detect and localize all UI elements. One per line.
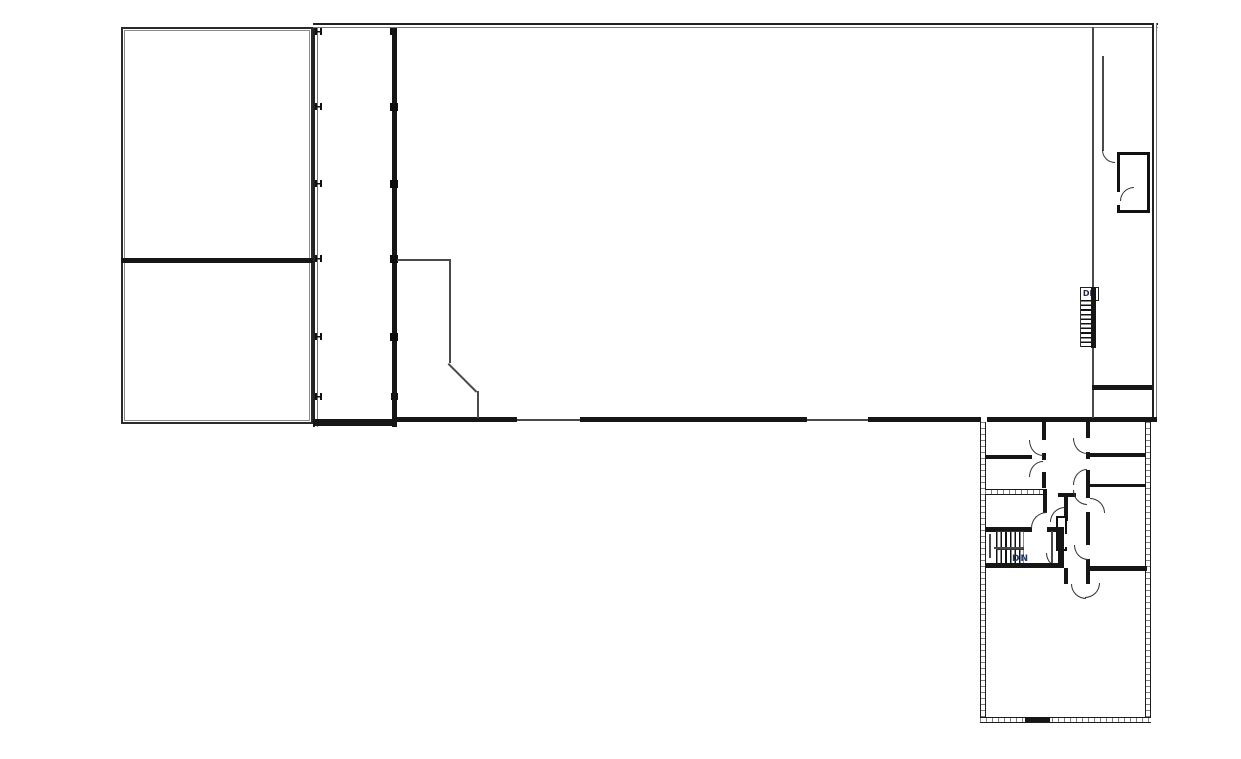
door-swing-arc (1029, 461, 1043, 477)
corridor-right-wall (392, 23, 397, 427)
main-bottom-wall-segment (868, 417, 981, 422)
door-swing-arc (1073, 490, 1087, 505)
double-door-leaf-arc (1071, 584, 1086, 599)
door-swing-arc (1073, 438, 1087, 454)
wing-room-wall (1090, 453, 1145, 457)
stair-upper-dn-label: DN (1080, 287, 1099, 301)
column-icon (315, 180, 322, 187)
stair-lower-wall (1058, 527, 1064, 568)
main-bottom-opening-line (807, 419, 868, 421)
vestibule-left-wall (1042, 422, 1046, 440)
column-icon (315, 28, 322, 35)
partition-line (449, 259, 451, 363)
column-icon (391, 393, 398, 400)
stair-upper-wall (1091, 287, 1096, 348)
column-icon (390, 333, 398, 341)
door-swing-arc (1029, 440, 1043, 456)
stair-lower-treads (996, 531, 1024, 547)
column-icon (315, 333, 322, 340)
corridor-bottom-wall (313, 419, 397, 426)
wing-left-wall (980, 422, 986, 721)
door-swing-arc (1102, 150, 1115, 163)
stair-landing-line (994, 547, 1024, 549)
main-top-wall (313, 23, 1158, 28)
top-right-closet-room (1117, 152, 1150, 213)
wing-room-wall (985, 455, 1032, 459)
corridor-wall (1086, 559, 1090, 584)
wing-room-wall (1090, 484, 1146, 487)
interior-window-band (985, 489, 1043, 495)
door-swing-arc (1031, 512, 1047, 528)
door-swing-arc (1074, 545, 1088, 560)
shaft-door-opening (1065, 534, 1069, 547)
corridor-left-wall (313, 23, 318, 427)
wing-room-wall (1087, 566, 1147, 571)
left-building-divider-wall (121, 258, 313, 263)
stair-direction-line (989, 534, 991, 558)
corridor-wall (1086, 512, 1090, 545)
main-right-wall (1152, 23, 1157, 422)
left-building-outline (121, 27, 313, 424)
column-icon (390, 180, 398, 188)
corridor-wall (1064, 568, 1068, 584)
floor-plan-canvas: DN DN (0, 0, 1241, 759)
wing-bottom-wall-accent (1025, 717, 1050, 722)
main-bottom-wall-segment (580, 417, 807, 422)
stair-lower-dn-label: DN (1012, 554, 1029, 564)
vestibule-right-wall (1086, 422, 1090, 438)
right-zone-partition (1092, 27, 1094, 418)
top-right-partition (1102, 56, 1104, 151)
column-icon (390, 103, 398, 111)
column-icon (315, 393, 322, 400)
main-bottom-wall-segment (397, 417, 517, 422)
double-door-leaf-arc (1085, 583, 1100, 598)
main-bottom-wall-segment (987, 417, 1157, 422)
partition-line (477, 391, 479, 418)
partition-line (397, 259, 449, 261)
wing-bottom-wall (980, 717, 1151, 723)
stair-landing-line (1051, 531, 1053, 563)
door-swing-arc (1090, 498, 1105, 513)
column-icon (315, 103, 322, 110)
bottom-right-room-wall (1092, 385, 1152, 390)
partition-diagonal-line (448, 363, 477, 392)
door-swing-arc (1073, 469, 1087, 485)
main-bottom-opening-line (517, 419, 580, 421)
wing-room-wall (1043, 489, 1047, 513)
column-icon (390, 28, 397, 35)
column-icon (315, 255, 322, 262)
wing-right-wall (1145, 422, 1151, 721)
